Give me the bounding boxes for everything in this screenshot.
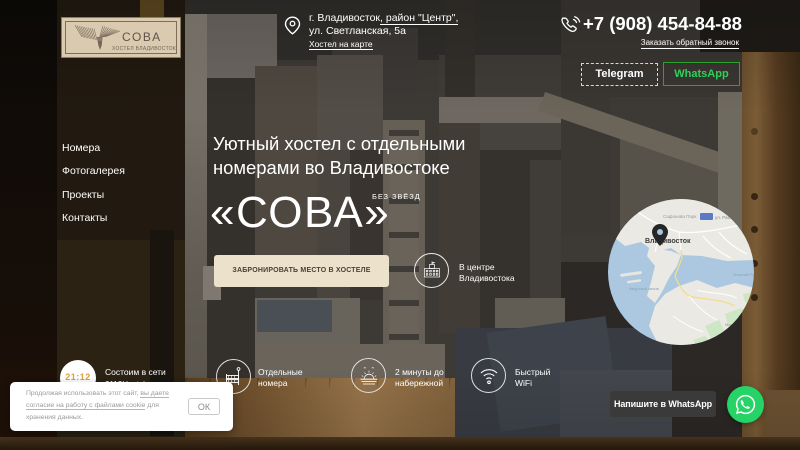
svg-text:Амурский залив: Амурский залив <box>629 286 659 291</box>
svg-text:Золотой Рог: Золотой Рог <box>733 272 755 277</box>
svg-text:Маяк: Маяк <box>725 322 735 327</box>
svg-text:Владивосток: Владивосток <box>645 238 691 245</box>
svg-text:Сафонова Парк: Сафонова Парк <box>663 214 696 219</box>
svg-text:ул. Рабочая: ул. Рабочая <box>715 215 740 220</box>
